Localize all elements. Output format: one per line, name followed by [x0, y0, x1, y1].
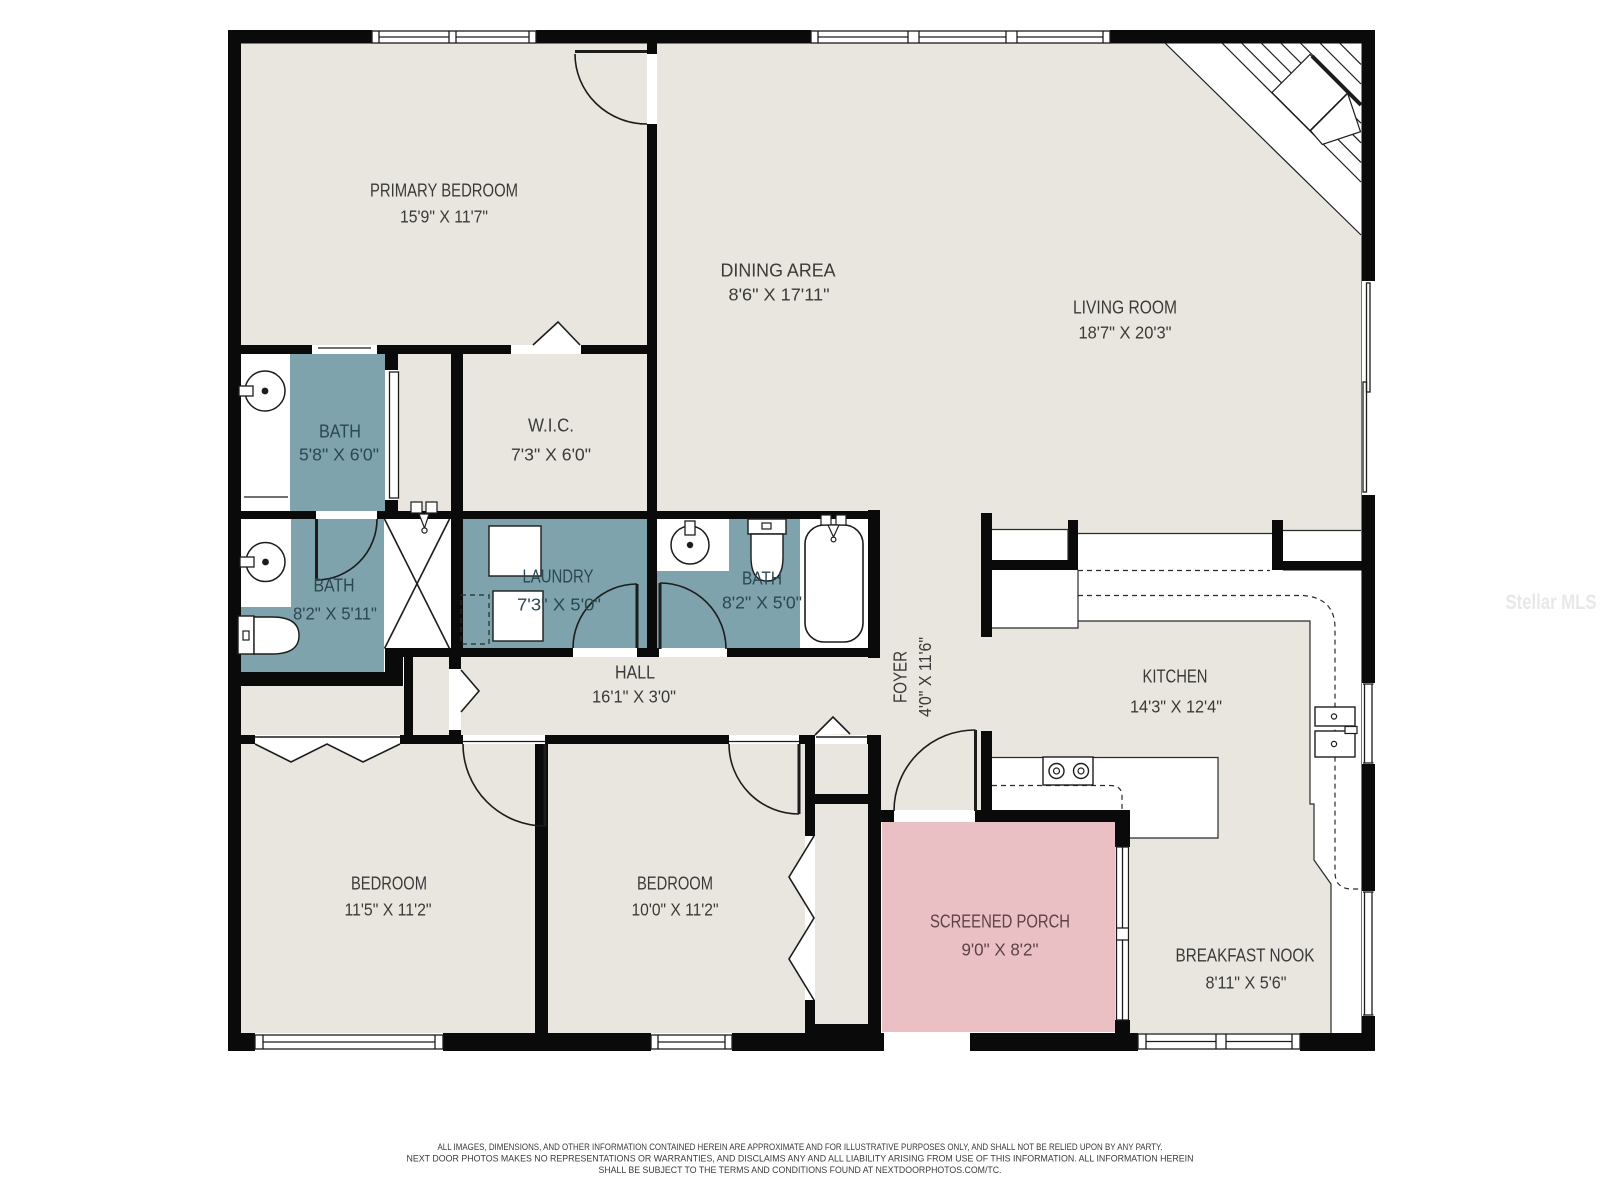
svg-text:DINING AREA: DINING AREA [721, 260, 836, 281]
svg-text:BATH: BATH [314, 575, 355, 596]
svg-text:7'3" X 5'0": 7'3" X 5'0" [517, 595, 601, 615]
svg-text:BATH: BATH [742, 568, 782, 589]
svg-text:BEDROOM: BEDROOM [637, 873, 713, 894]
svg-text:SCREENED PORCH: SCREENED PORCH [930, 911, 1070, 932]
svg-text:W.I.C.: W.I.C. [528, 415, 574, 436]
svg-text:18'7" X 20'3": 18'7" X 20'3" [1079, 323, 1172, 343]
svg-text:4'0" X 11'6": 4'0" X 11'6" [915, 637, 935, 717]
svg-text:14'3" X 12'4": 14'3" X 12'4" [1130, 697, 1222, 717]
svg-text:16'1" X 3'0": 16'1" X 3'0" [592, 687, 676, 707]
svg-text:ALL IMAGES, DIMENSIONS, AND OT: ALL IMAGES, DIMENSIONS, AND OTHER INFORM… [438, 1142, 1163, 1152]
svg-text:HALL: HALL [615, 662, 655, 683]
svg-text:8'6" X 17'11": 8'6" X 17'11" [729, 285, 830, 305]
svg-text:LAUNDRY: LAUNDRY [523, 566, 594, 587]
svg-text:9'0" X 8'2": 9'0" X 8'2" [962, 940, 1039, 960]
svg-text:8'11" X 5'6": 8'11" X 5'6" [1206, 973, 1287, 993]
svg-text:8'2" X 5'11": 8'2" X 5'11" [293, 604, 377, 624]
svg-text:Stellar MLS: Stellar MLS [1506, 591, 1597, 614]
svg-text:BEDROOM: BEDROOM [351, 873, 427, 894]
svg-text:BREAKFAST NOOK: BREAKFAST NOOK [1176, 945, 1315, 966]
svg-text:NEXT DOOR PHOTOS MAKES NO REPR: NEXT DOOR PHOTOS MAKES NO REPRESENTATION… [407, 1154, 1194, 1164]
svg-text:PRIMARY BEDROOM: PRIMARY BEDROOM [370, 180, 518, 201]
svg-text:7'3" X 6'0": 7'3" X 6'0" [511, 445, 591, 465]
svg-text:15'9" X 11'7": 15'9" X 11'7" [400, 207, 488, 227]
svg-text:11'5" X 11'2": 11'5" X 11'2" [345, 900, 432, 920]
svg-text:5'8" X 6'0": 5'8" X 6'0" [299, 445, 379, 465]
svg-text:KITCHEN: KITCHEN [1143, 666, 1208, 687]
svg-text:8'2" X 5'0": 8'2" X 5'0" [722, 593, 802, 613]
svg-text:SHALL BE SUBJECT TO THE TERMS: SHALL BE SUBJECT TO THE TERMS AND CONDIT… [599, 1165, 1002, 1175]
svg-text:BATH: BATH [319, 421, 361, 442]
svg-text:FOYER: FOYER [890, 651, 911, 703]
svg-text:10'0" X 11'2": 10'0" X 11'2" [632, 900, 719, 920]
svg-text:LIVING ROOM: LIVING ROOM [1073, 297, 1177, 318]
